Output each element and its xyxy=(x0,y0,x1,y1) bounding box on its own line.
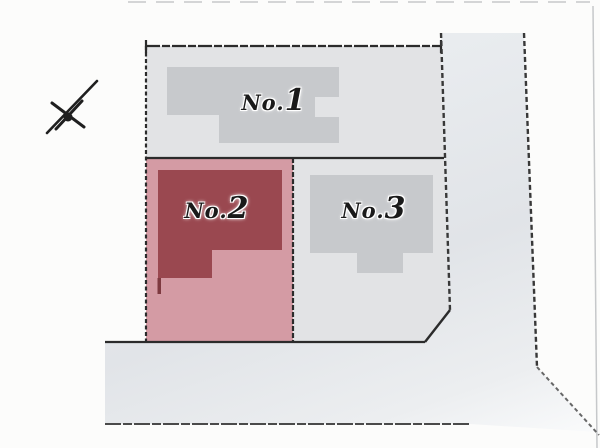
lot-1-label-prefix: No. xyxy=(241,90,284,115)
lot-1-label: No.1 xyxy=(241,86,306,116)
compass-needle-shaft xyxy=(47,81,97,133)
site-plan-drawing xyxy=(0,0,600,448)
lot-3-label: No.3 xyxy=(341,194,406,224)
north-arrow-icon xyxy=(47,81,97,133)
lot-2-label-prefix: No. xyxy=(184,198,227,223)
lot-2-label: No.2 xyxy=(184,194,249,224)
lot-2-label-number: 2 xyxy=(228,191,250,226)
lot-3-label-prefix: No. xyxy=(341,198,384,223)
compass-center-hub xyxy=(64,113,73,122)
lot-3-label-number: 3 xyxy=(385,191,407,226)
lot-1-label-number: 1 xyxy=(285,83,307,118)
scan-artifact-right-line xyxy=(593,6,597,448)
site-plan-canvas: No.1 No.2 No.3 xyxy=(0,0,600,448)
lot-2-building-tail-mark xyxy=(158,278,162,294)
